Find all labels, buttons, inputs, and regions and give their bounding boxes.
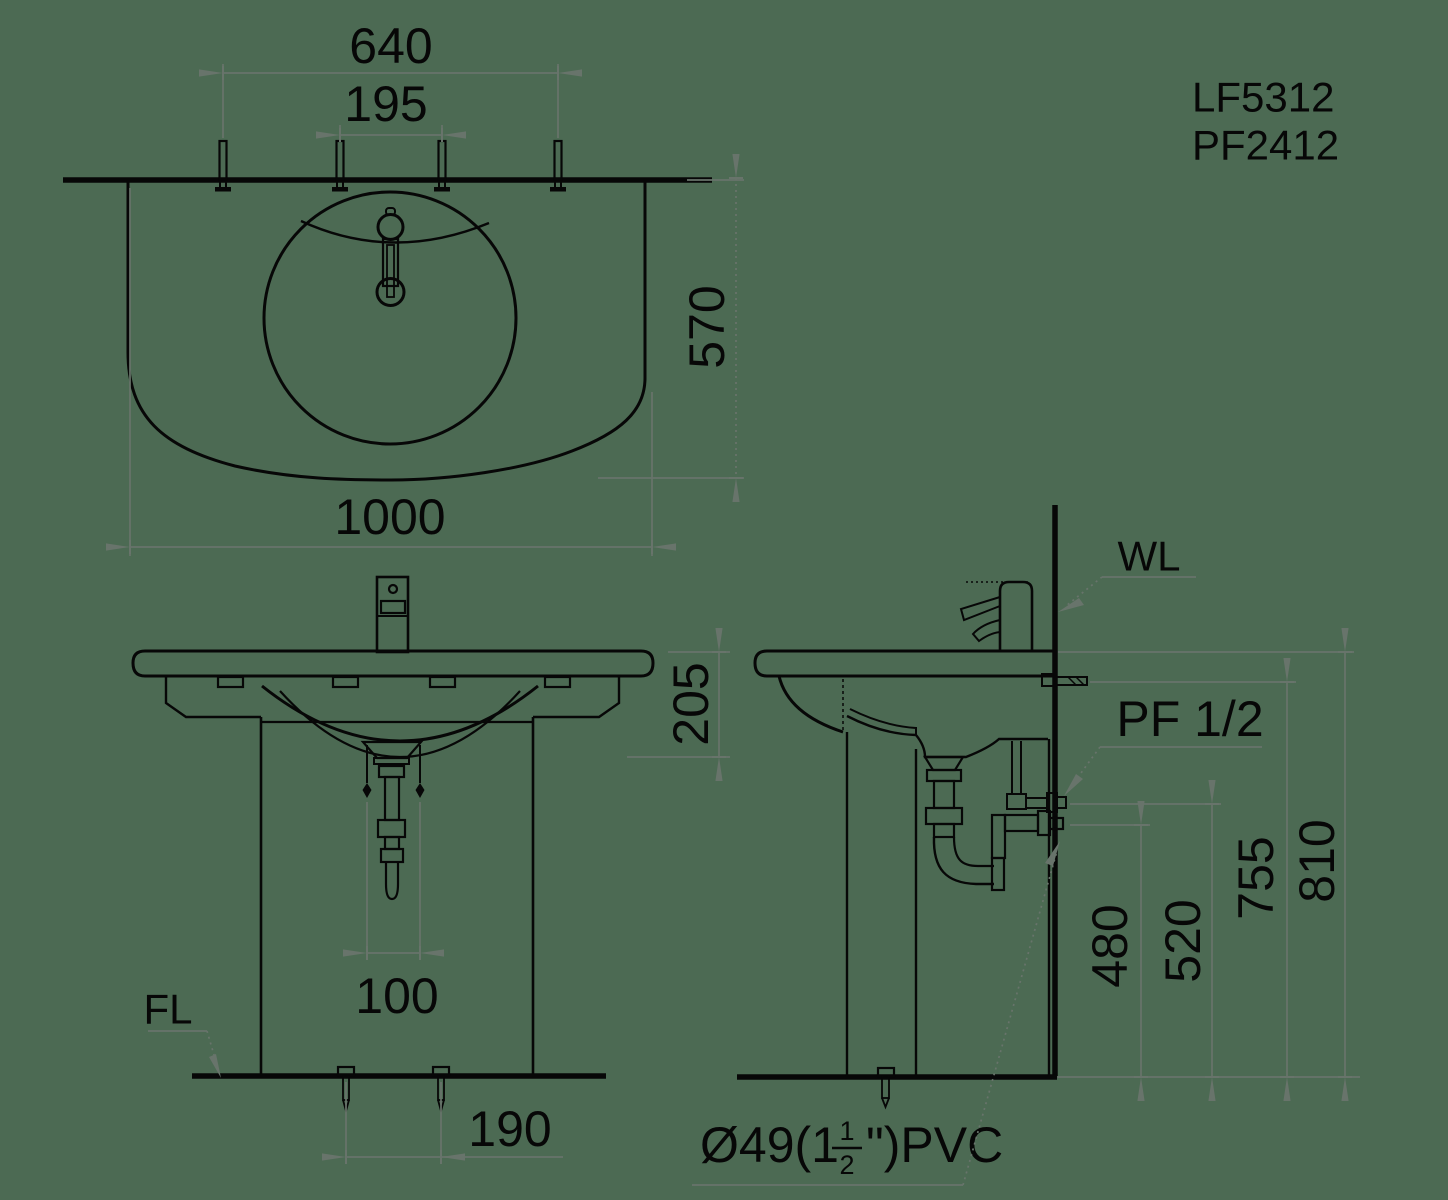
dim-195: 195 — [340, 76, 442, 142]
plan-mounting-bolts — [215, 141, 566, 192]
title-block: LF5312 PF2412 — [1192, 74, 1339, 169]
dim-205: 205 — [627, 652, 730, 757]
drain-pipe-callout: Ø49(1 1 2 ")PVC — [692, 841, 1060, 1185]
side-anchor-bolt — [878, 1068, 894, 1107]
dim-190: 190 — [346, 1082, 563, 1164]
plan-inner-bowl — [264, 192, 516, 444]
dim-480: 480 — [1070, 825, 1150, 1077]
front-mounting-slots — [218, 677, 570, 687]
front-drain-trap — [363, 742, 421, 899]
dim-755-value: 755 — [1228, 836, 1284, 919]
side-rim — [755, 651, 1055, 676]
side-view: WL PF 1/2 480 520 — [692, 505, 1360, 1185]
dim-205-value: 205 — [663, 662, 719, 745]
plan-faucet-icon — [377, 208, 404, 306]
dim-100: 100 — [355, 802, 438, 1024]
floor-level-callout: FL — [143, 986, 221, 1079]
dim-190-value: 190 — [468, 1101, 551, 1157]
side-apron-curve — [779, 676, 843, 732]
front-faucet-icon — [377, 577, 408, 652]
bolt-icon — [215, 141, 231, 192]
side-drain-trap — [925, 757, 1063, 890]
side-pedestal — [847, 732, 1049, 1076]
dim-570: 570 — [598, 178, 744, 478]
front-bowl-arc-inner — [280, 691, 520, 757]
front-view: 205 100 190 FL — [133, 577, 730, 1164]
drain-pipe-label-prefix: Ø49(1 — [700, 1117, 839, 1173]
drain-pipe-label-frac-num: 1 — [839, 1116, 854, 1146]
drain-pipe-label-frac-den: 2 — [839, 1150, 854, 1180]
dim-100-value: 100 — [355, 968, 438, 1024]
dim-195-value: 195 — [344, 76, 427, 132]
wall-level-callout: WL — [1058, 533, 1196, 613]
wall-level-label: WL — [1118, 533, 1181, 580]
technical-drawing: LF5312 PF2412 — [0, 0, 1448, 1200]
side-bowl-profile — [847, 716, 1048, 757]
bolt-icon — [332, 141, 348, 192]
dim-640-value: 640 — [349, 18, 432, 74]
model-code-1: LF5312 — [1192, 74, 1334, 121]
model-code-2: PF2412 — [1192, 122, 1339, 169]
front-rim — [133, 651, 653, 676]
dim-570-value: 570 — [679, 285, 735, 368]
supply-thread-label: PF 1/2 — [1116, 691, 1263, 747]
floor-level-label: FL — [143, 986, 192, 1033]
bolt-icon — [550, 141, 566, 192]
drain-pipe-label-suffix: ")PVC — [866, 1117, 1003, 1173]
side-faucet-icon — [961, 582, 1032, 652]
plan-view: 640 195 570 1000 — [63, 18, 744, 556]
front-left-wing — [166, 676, 261, 717]
dim-480-value: 480 — [1082, 904, 1138, 987]
dim-520-value: 520 — [1155, 899, 1211, 982]
dim-810-value: 810 — [1289, 819, 1345, 902]
supply-thread-callout: PF 1/2 — [1064, 691, 1264, 796]
bolt-icon — [434, 141, 450, 192]
plan-basin-outline — [128, 181, 645, 480]
dim-1000-value: 1000 — [334, 489, 445, 545]
